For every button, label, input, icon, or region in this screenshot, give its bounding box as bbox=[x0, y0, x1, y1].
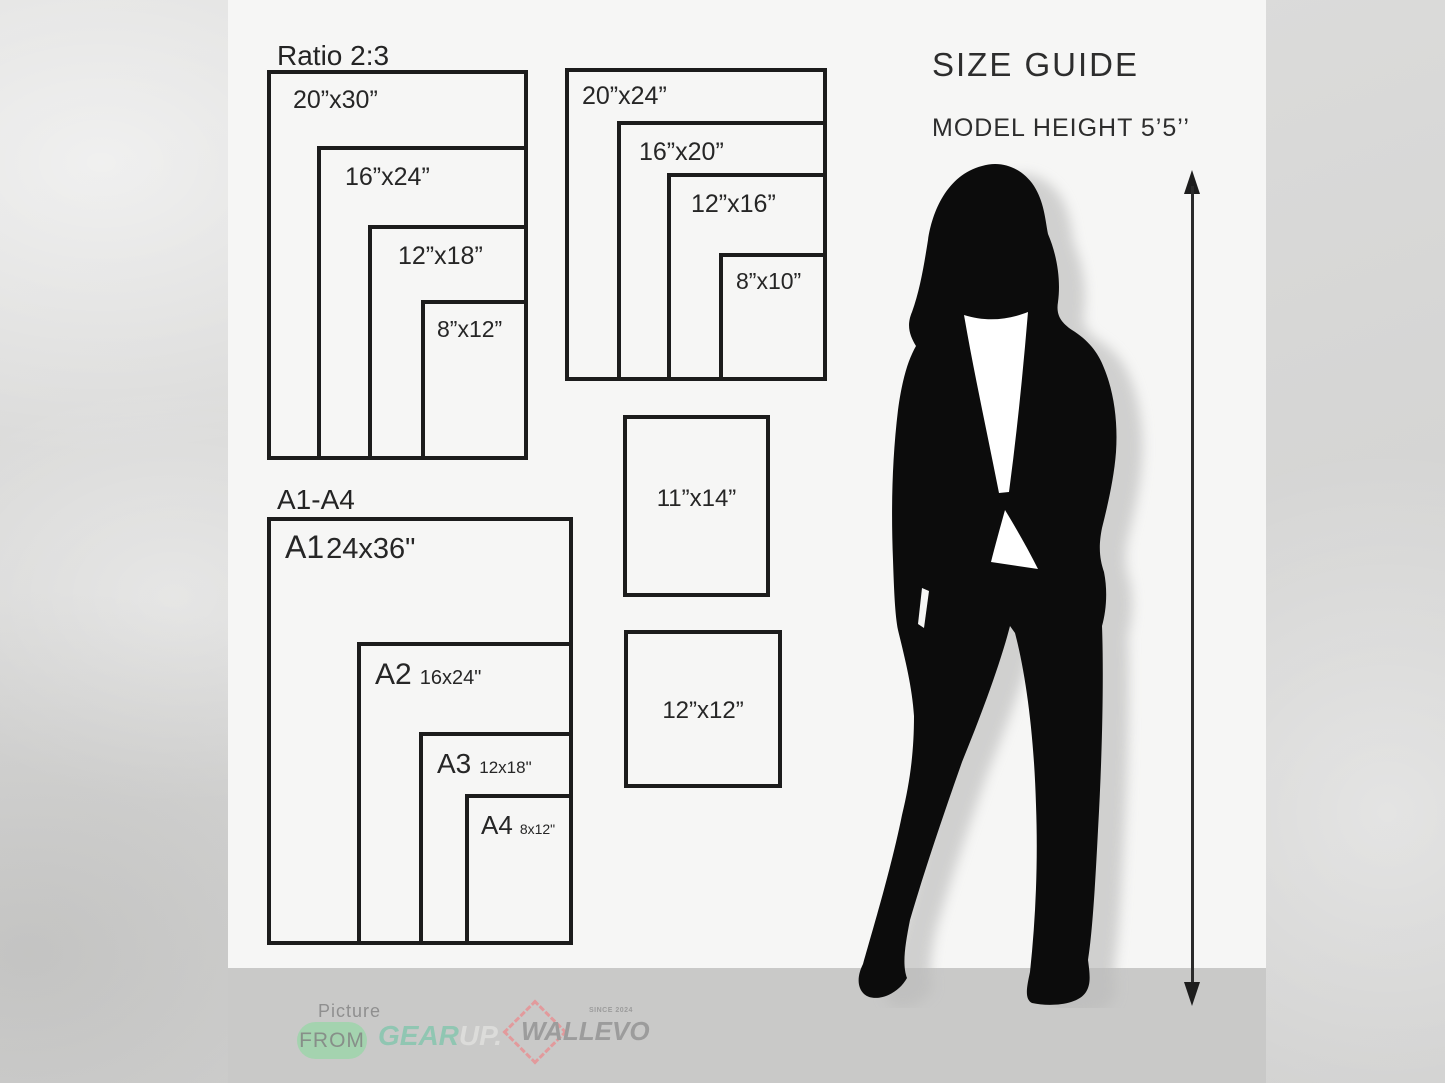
a-size-name: A1 bbox=[285, 529, 324, 566]
gearup-logo: GEARUP. bbox=[378, 1020, 502, 1052]
size-box-11x14: 11”x14” bbox=[623, 415, 770, 597]
size-label: 16”x20” bbox=[621, 125, 823, 167]
size-label: 20”x30” bbox=[271, 74, 524, 115]
wallevo-logo-text: WALLEVO bbox=[521, 1016, 650, 1047]
picture-from-label: Picture bbox=[318, 1001, 381, 1022]
size-box-8x12: 8”x12” bbox=[421, 300, 528, 460]
size-label: 20”x24” bbox=[569, 72, 823, 111]
a-series-title: A1-A4 bbox=[277, 484, 355, 516]
a-size-dimensions: 12x18" bbox=[479, 758, 531, 778]
a-size-dimensions: 24x36" bbox=[326, 533, 415, 566]
size-label: 8”x10” bbox=[723, 257, 823, 295]
a-size-name: A4 bbox=[481, 810, 513, 841]
a-size-dimensions: 8x12" bbox=[520, 821, 555, 837]
size-guide-image: Ratio 2:3 A1-A4 SIZE GUIDE MODEL HEIGHT … bbox=[0, 0, 1445, 1083]
size-label: 8”x12” bbox=[425, 304, 524, 343]
arrow-down-icon bbox=[1184, 982, 1200, 1006]
size-box-12x12: 12”x12” bbox=[624, 630, 782, 788]
size-label: 16”x24” bbox=[321, 150, 524, 192]
ratio-group-title: Ratio 2:3 bbox=[277, 40, 389, 72]
page-title: SIZE GUIDE bbox=[932, 46, 1139, 84]
size-label: 11”x14” bbox=[657, 485, 737, 513]
gearup-up-text: UP. bbox=[459, 1020, 502, 1051]
from-pill-badge: FROM bbox=[297, 1022, 367, 1059]
gearup-gear-text: GEAR bbox=[378, 1020, 459, 1051]
size-label: 12”x18” bbox=[372, 229, 524, 271]
a-size-name: A3 bbox=[437, 748, 471, 780]
arrow-line bbox=[1191, 186, 1194, 988]
size-label: 12”x12” bbox=[662, 697, 743, 725]
size-label: 12”x16” bbox=[671, 177, 823, 219]
a-size-name: A2 bbox=[375, 658, 412, 692]
a-size-dimensions: 16x24" bbox=[420, 667, 482, 690]
model-silhouette bbox=[852, 160, 1164, 1008]
wallevo-since-text: SINCE 2024 bbox=[589, 1007, 633, 1014]
size-box-8x10: 8”x10” bbox=[719, 253, 827, 381]
size-box-a4: A48x12" bbox=[465, 794, 573, 945]
model-height-label: MODEL HEIGHT 5’5’’ bbox=[932, 114, 1190, 143]
